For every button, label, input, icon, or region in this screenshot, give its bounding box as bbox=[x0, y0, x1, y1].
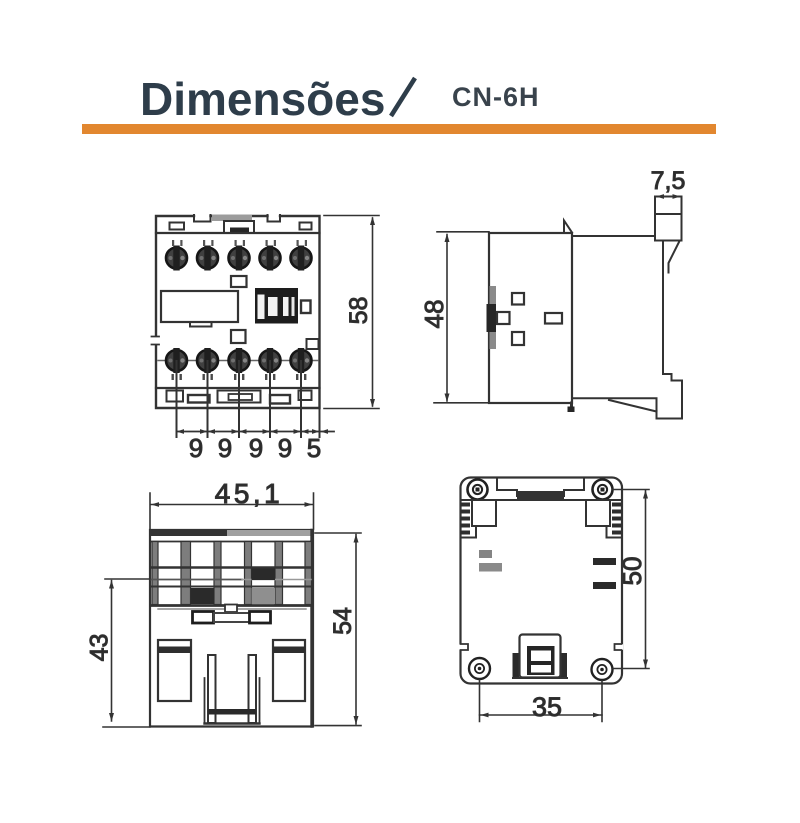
svg-text:45,1: 45,1 bbox=[215, 478, 284, 509]
svg-text:54: 54 bbox=[329, 607, 357, 635]
svg-text:7,5: 7,5 bbox=[651, 167, 686, 195]
svg-text:48: 48 bbox=[419, 300, 449, 329]
svg-text:35: 35 bbox=[532, 692, 562, 722]
svg-text:9: 9 bbox=[278, 433, 292, 463]
svg-text:9: 9 bbox=[189, 433, 203, 463]
svg-text:9: 9 bbox=[249, 433, 263, 463]
svg-text:5: 5 bbox=[307, 433, 321, 463]
svg-text:50: 50 bbox=[617, 557, 647, 586]
svg-text:43: 43 bbox=[86, 634, 114, 662]
svg-text:58: 58 bbox=[345, 297, 373, 325]
svg-text:9: 9 bbox=[218, 433, 232, 463]
